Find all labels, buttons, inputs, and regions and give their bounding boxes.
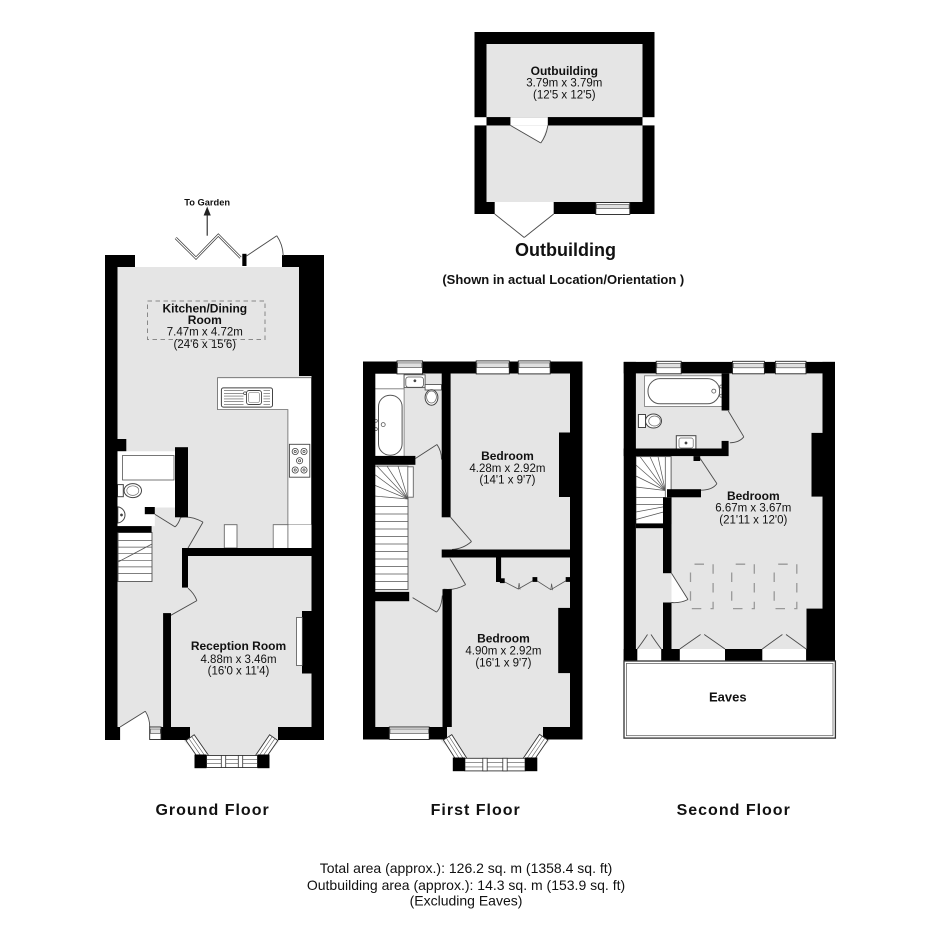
svg-text:Reception Room: Reception Room [191,639,286,653]
svg-text:(14'1 x 9'7): (14'1 x 9'7) [479,475,535,487]
svg-text:First Floor: First Floor [431,802,521,819]
svg-text:6.67m x 3.67m: 6.67m x 3.67m [715,503,791,515]
svg-text:Eaves: Eaves [709,690,747,705]
svg-text:(21'11 x 12'0): (21'11 x 12'0) [719,514,787,526]
svg-text:Outbuilding: Outbuilding [515,240,616,260]
svg-text:Outbuilding area (approx.): 14: Outbuilding area (approx.): 14.3 sq. m (… [307,877,625,893]
svg-text:(Excluding Eaves): (Excluding Eaves) [410,892,523,908]
svg-text:Room: Room [188,313,222,327]
svg-text:3.79m x 3.79m: 3.79m x 3.79m [526,78,602,90]
svg-text:Outbuilding: Outbuilding [531,64,598,78]
svg-text:Bedroom: Bedroom [727,489,780,503]
svg-text:(24'6 x 15'6): (24'6 x 15'6) [174,339,237,351]
svg-text:7.47m x 4.72m: 7.47m x 4.72m [167,327,243,339]
svg-text:Bedroom: Bedroom [477,631,530,645]
svg-text:(16'0 x 11'4): (16'0 x 11'4) [208,666,270,678]
svg-text:Second Floor: Second Floor [677,802,791,819]
svg-text:Ground Floor: Ground Floor [155,802,269,819]
svg-text:(Shown in actual Location/Orie: (Shown in actual Location/Orientation ) [442,272,684,287]
svg-text:Total area (approx.): 126.2 sq: Total area (approx.): 126.2 sq. m (1358.… [320,860,613,876]
svg-text:Bedroom: Bedroom [481,449,534,463]
svg-text:4.90m x 2.92m: 4.90m x 2.92m [465,645,541,657]
svg-text:(12'5 x 12'5): (12'5 x 12'5) [533,90,596,102]
svg-text:4.28m x 2.92m: 4.28m x 2.92m [469,463,545,475]
svg-text:4.88m x 3.46m: 4.88m x 3.46m [200,654,276,666]
svg-text:(16'1 x 9'7): (16'1 x 9'7) [475,657,531,669]
svg-text:To Garden: To Garden [184,197,230,207]
